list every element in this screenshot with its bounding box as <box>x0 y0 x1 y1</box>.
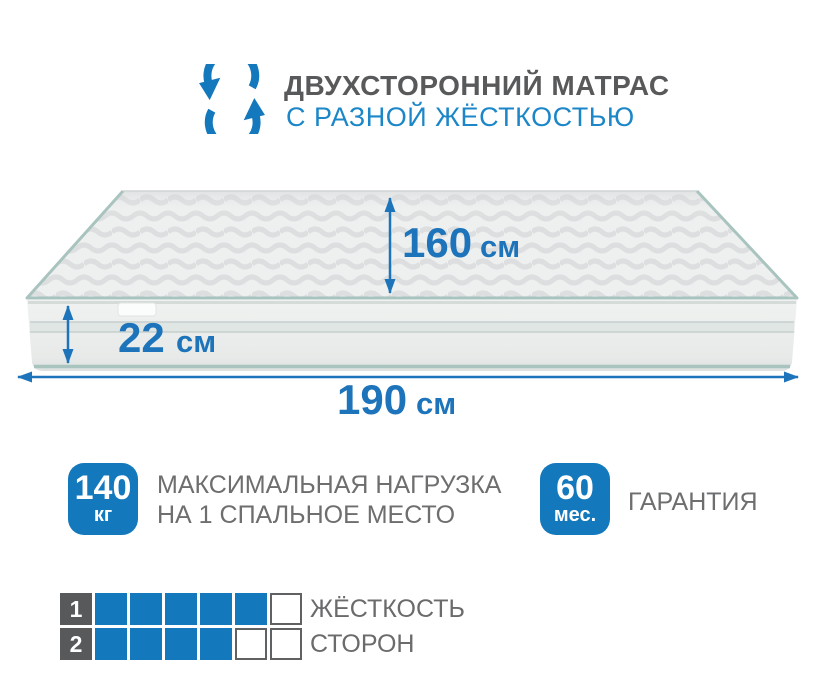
warranty-value: 60 <box>556 472 594 504</box>
firmness-square-empty <box>235 628 267 660</box>
firmness-row-side1: 1 <box>60 593 302 625</box>
page-subtitle: С РАЗНОЙ ЖЁСТКОСТЬЮ <box>286 102 635 133</box>
width-unit: см <box>416 386 456 421</box>
firmness-label-line1: ЖЁСТКОСТЬ <box>310 593 465 625</box>
warranty-label: ГАРАНТИЯ <box>628 487 758 517</box>
firmness-square-filled <box>95 628 127 660</box>
max-load-label: МАКСИМАЛЬНАЯ НАГРУЗКА НА 1 СПАЛЬНОЕ МЕСТ… <box>157 470 501 530</box>
rotate-arrows-icon <box>198 64 266 134</box>
firmness-square-filled <box>130 628 162 660</box>
firmness-square-filled <box>95 593 127 625</box>
firmness-square-filled <box>165 593 197 625</box>
depth-value: 160 <box>402 219 472 266</box>
firmness-square-filled <box>235 593 267 625</box>
depth-unit: см <box>480 229 520 264</box>
firmness-label-line2: СТОРОН <box>310 628 414 660</box>
side1-number-square: 1 <box>60 593 92 625</box>
firmness-square-empty <box>270 593 302 625</box>
firmness-square-filled <box>200 593 232 625</box>
side2-number-square: 2 <box>60 628 92 660</box>
firmness-square-filled <box>130 593 162 625</box>
warranty-badge: 60 мес. <box>540 463 610 535</box>
max-load-label-line1: МАКСИМАЛЬНАЯ НАГРУЗКА <box>157 470 501 500</box>
dimension-width: 190 см <box>18 376 798 423</box>
page-title: ДВУХСТОРОННИЙ МАТРАС <box>284 70 670 102</box>
max-load-unit: кг <box>94 504 112 526</box>
width-value: 190 <box>337 376 407 423</box>
height-value: 22 <box>118 314 165 361</box>
max-load-badge: 140 кг <box>68 463 138 535</box>
mattress-illustration: 160 см 22 см 190 см <box>0 160 816 430</box>
firmness-square-filled <box>165 628 197 660</box>
firmness-square-empty <box>270 628 302 660</box>
firmness-square-filled <box>200 628 232 660</box>
warranty-unit: мес. <box>554 504 596 526</box>
firmness-row-side2: 2 <box>60 628 302 660</box>
max-load-label-line2: НА 1 СПАЛЬНОЕ МЕСТО <box>157 500 501 530</box>
max-load-value: 140 <box>75 472 132 504</box>
height-unit: см <box>176 324 216 359</box>
